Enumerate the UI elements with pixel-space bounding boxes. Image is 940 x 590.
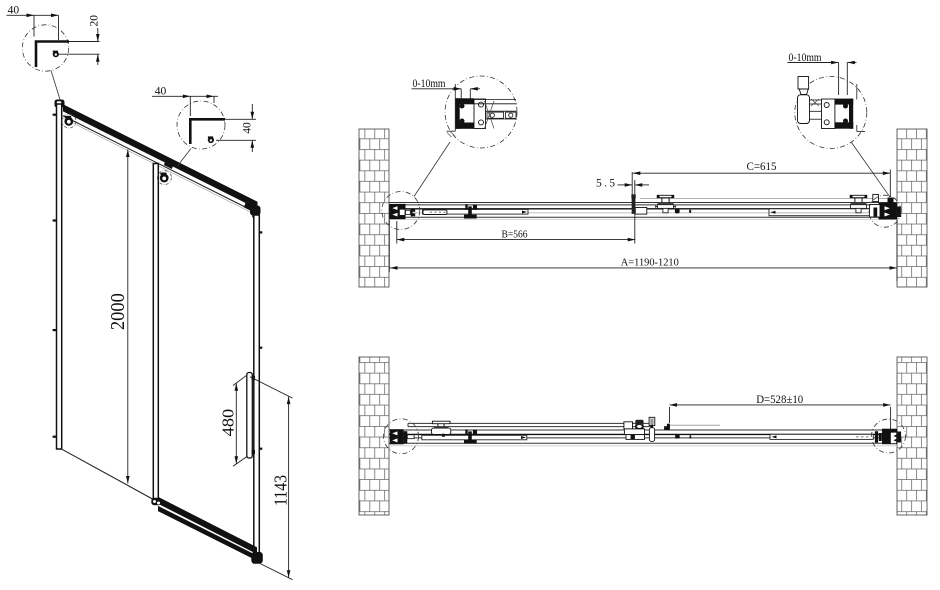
svg-text:C=615: C=615 (747, 161, 777, 173)
svg-text:1143: 1143 (271, 475, 291, 506)
svg-text:40: 40 (155, 85, 167, 97)
svg-text:5.5: 5.5 (596, 178, 615, 190)
svg-text:40: 40 (241, 122, 253, 134)
svg-text:20: 20 (89, 15, 101, 27)
svg-text:D=528±10: D=528±10 (756, 394, 803, 406)
svg-text:B=566: B=566 (502, 228, 528, 240)
svg-text:480: 480 (219, 409, 238, 437)
svg-text:A=1190-1210: A=1190-1210 (621, 256, 679, 268)
svg-text:40: 40 (8, 5, 20, 17)
svg-text:2000: 2000 (107, 293, 129, 330)
